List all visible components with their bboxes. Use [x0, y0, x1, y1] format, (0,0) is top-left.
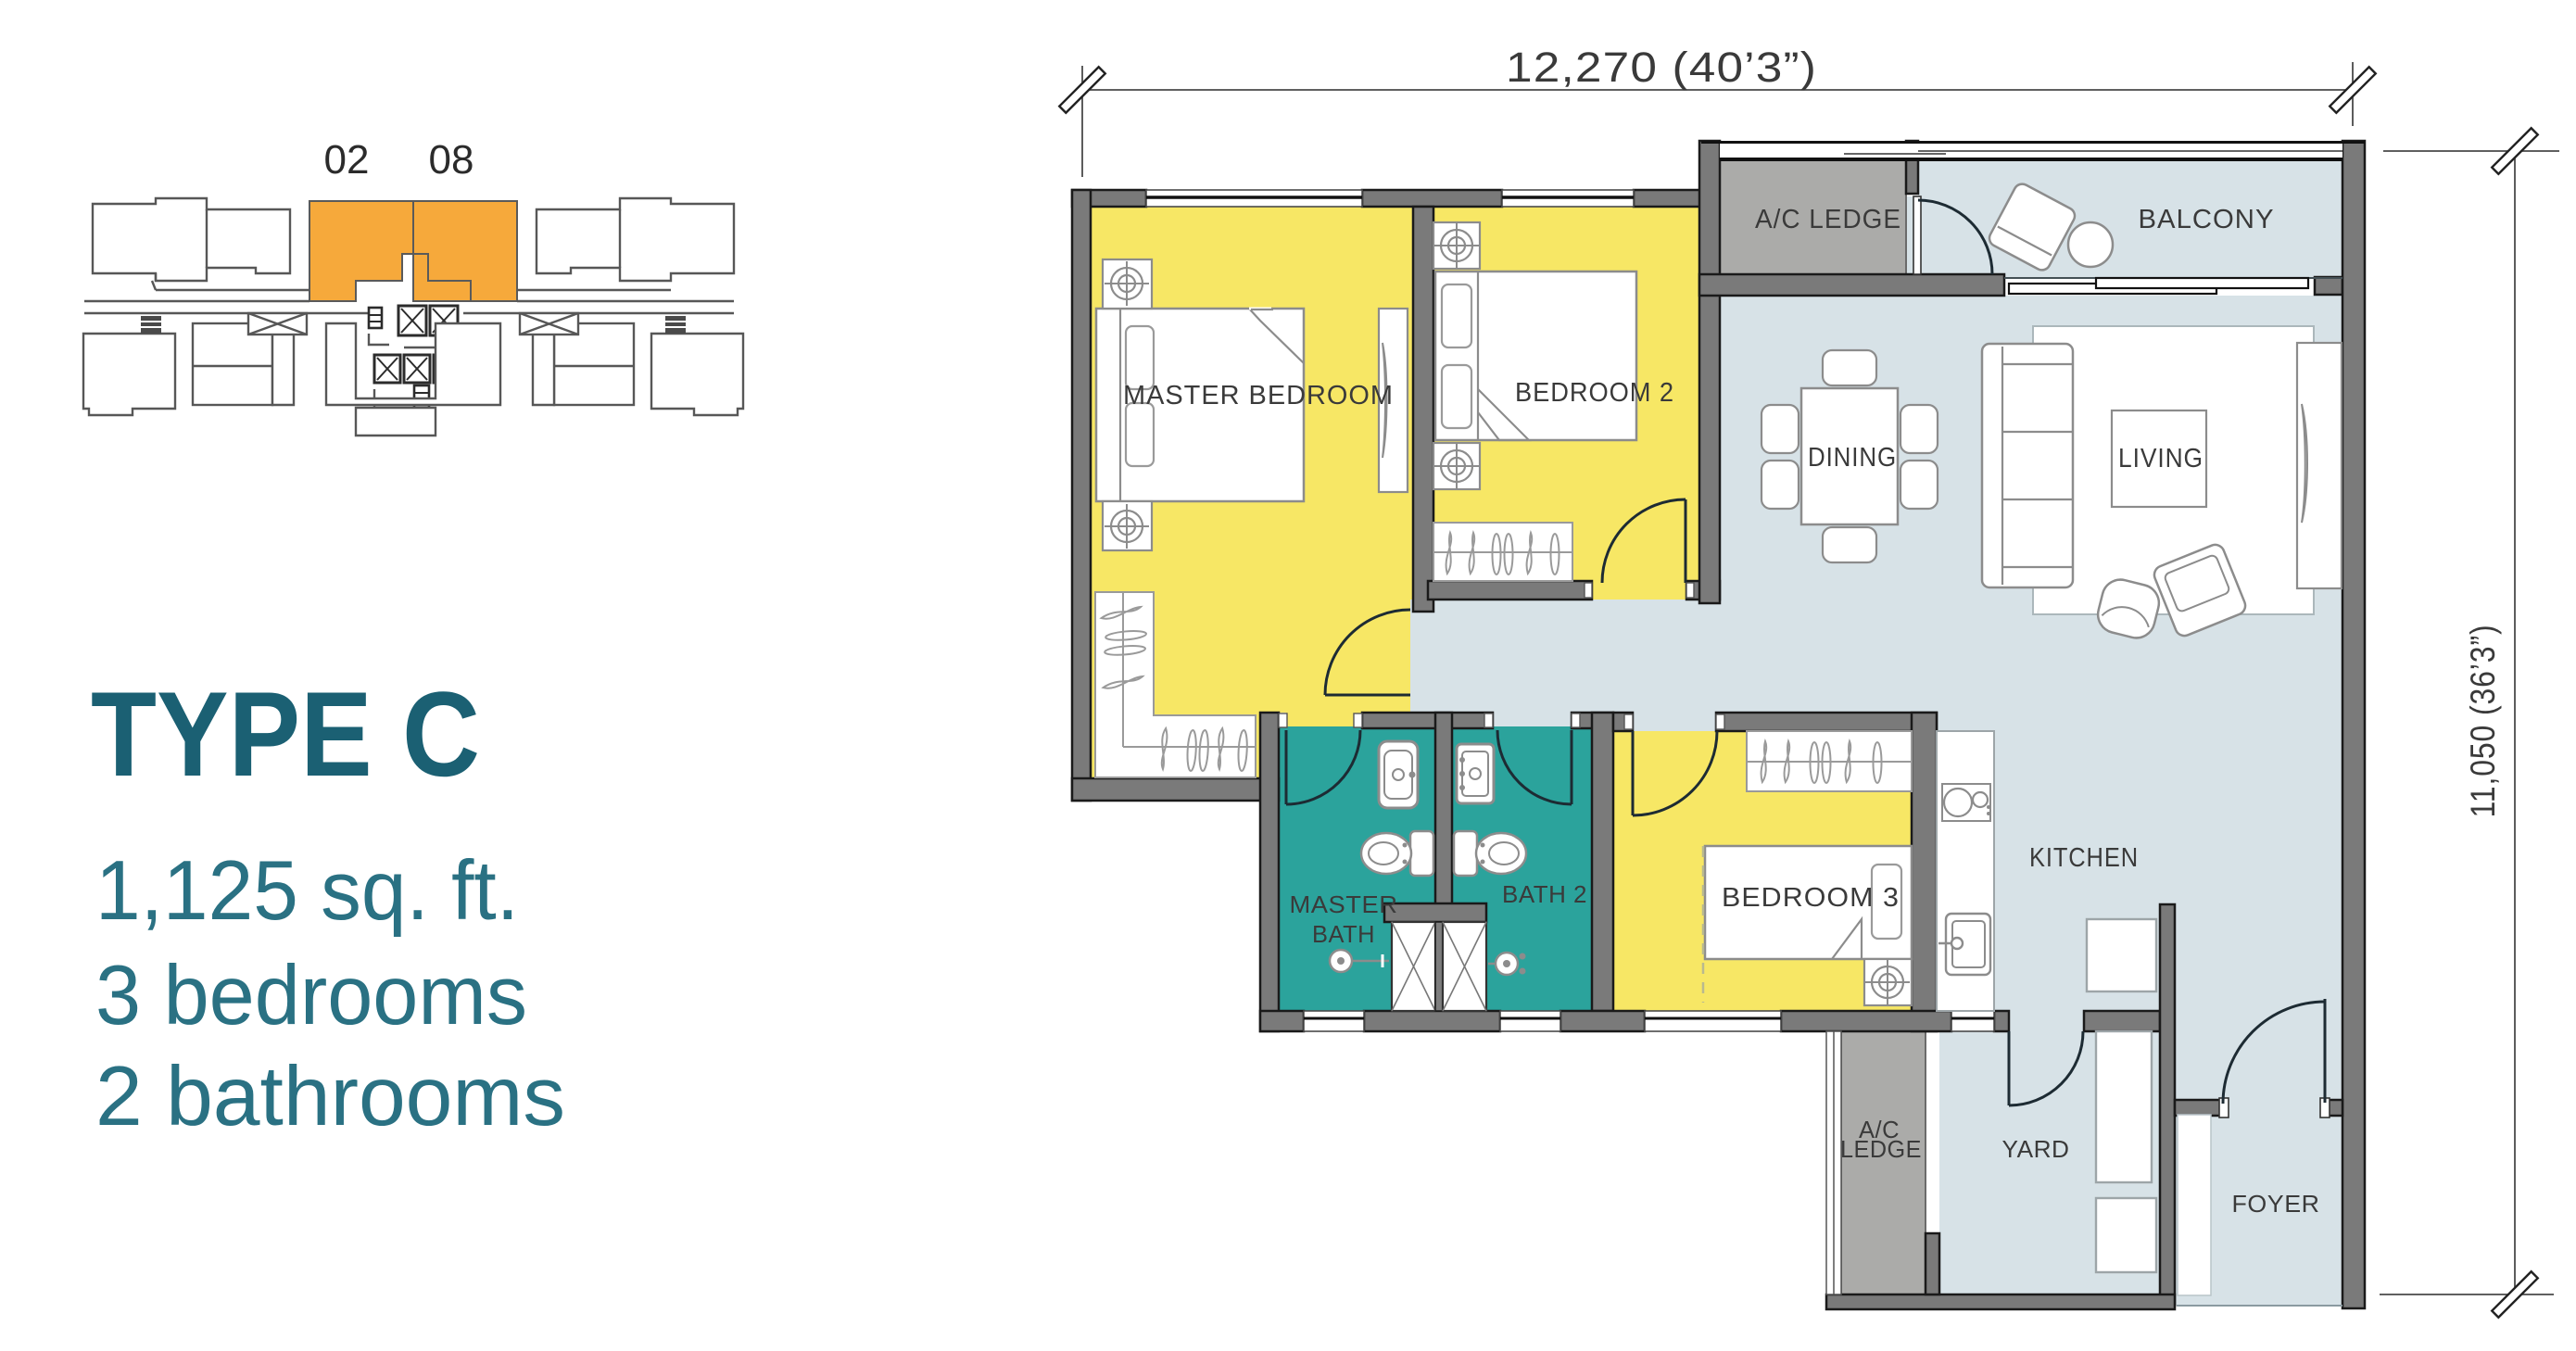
- svg-text:YARD: YARD: [2002, 1135, 2070, 1163]
- svg-text:LEDGE: LEDGE: [1840, 1135, 1922, 1163]
- svg-text:FOYER: FOYER: [2232, 1190, 2320, 1218]
- svg-text:A/C LEDGE: A/C LEDGE: [1755, 205, 1901, 234]
- svg-text:TYPE C: TYPE C: [91, 666, 480, 802]
- svg-text:BEDROOM 3: BEDROOM 3: [1722, 883, 1900, 913]
- svg-text:11,050 (36’3”): 11,050 (36’3”): [2464, 625, 2502, 818]
- svg-text:KITCHEN: KITCHEN: [2029, 843, 2139, 873]
- svg-text:BATH: BATH: [1312, 920, 1375, 948]
- svg-text:02: 02: [324, 137, 370, 183]
- svg-text:MASTER: MASTER: [1290, 890, 1398, 918]
- svg-text:08: 08: [429, 137, 474, 183]
- svg-text:12,270 (40’3”): 12,270 (40’3”): [1506, 44, 1817, 91]
- svg-text:MASTER BEDROOM: MASTER BEDROOM: [1123, 381, 1394, 410]
- svg-text:BALCONY: BALCONY: [2139, 205, 2275, 234]
- svg-text:3 bedrooms: 3 bedrooms: [95, 949, 527, 1042]
- svg-text:BEDROOM 2: BEDROOM 2: [1515, 378, 1674, 408]
- svg-text:1,125 sq. ft.: 1,125 sq. ft.: [95, 844, 519, 938]
- svg-text:DINING: DINING: [1808, 443, 1897, 473]
- svg-text:BATH 2: BATH 2: [1502, 880, 1587, 908]
- svg-text:2 bathrooms: 2 bathrooms: [95, 1050, 565, 1143]
- svg-text:LIVING: LIVING: [2118, 444, 2203, 473]
